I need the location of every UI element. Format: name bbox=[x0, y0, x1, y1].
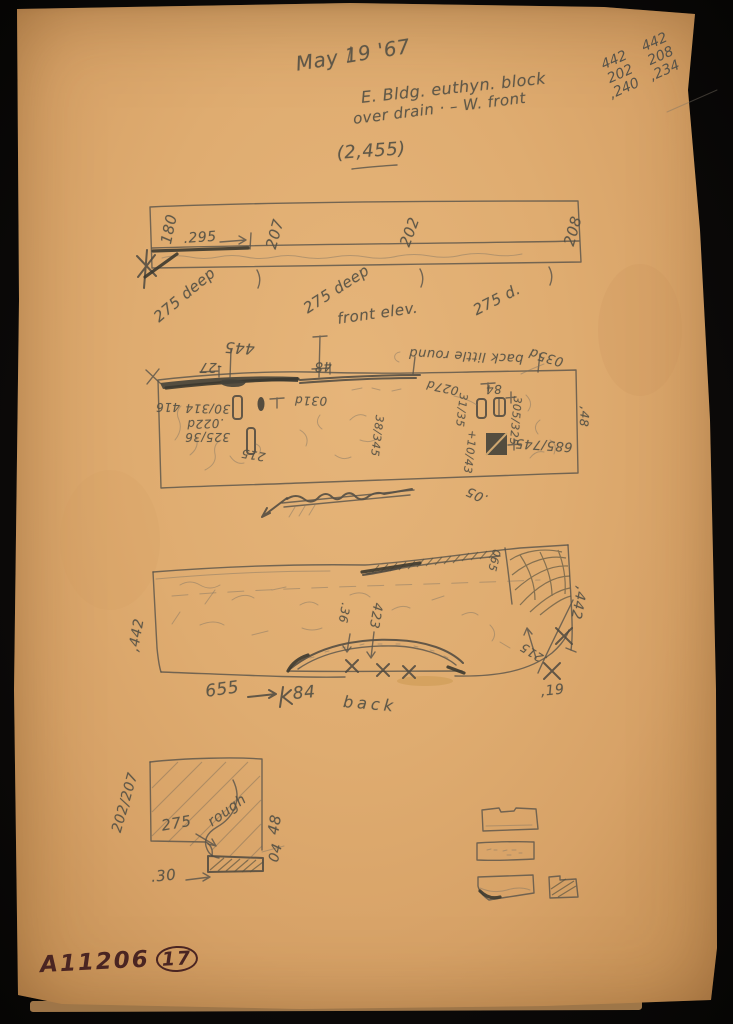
dim-022d: .022d bbox=[187, 416, 224, 431]
dim-84-back: 84 bbox=[292, 682, 316, 704]
dim-48-top: 48 bbox=[314, 358, 332, 374]
sheet-number-circled: 17 bbox=[155, 945, 199, 973]
scanned-notebook-page: May 19 '67 E. Bldg. euthyn. block over d… bbox=[0, 0, 733, 1024]
negative-number: A11206 bbox=[39, 946, 150, 978]
dim-416: 416 bbox=[156, 400, 180, 414]
dim-30-314: 30/314 bbox=[185, 401, 230, 416]
dim-325-36: 325/36 bbox=[185, 430, 230, 444]
dim-30: .30 bbox=[150, 865, 177, 886]
dim-84-inner: 84 bbox=[485, 382, 502, 397]
dim-minus-27: -27 bbox=[199, 359, 222, 374]
dim-19: ,19 bbox=[540, 682, 565, 700]
dim-48-section: 48 bbox=[264, 813, 285, 836]
dim-48-right: ,48 bbox=[577, 406, 592, 428]
dim-031d: 031d bbox=[294, 393, 327, 408]
dim-445: 445 bbox=[224, 338, 255, 358]
dim-295: .295 bbox=[183, 229, 217, 247]
